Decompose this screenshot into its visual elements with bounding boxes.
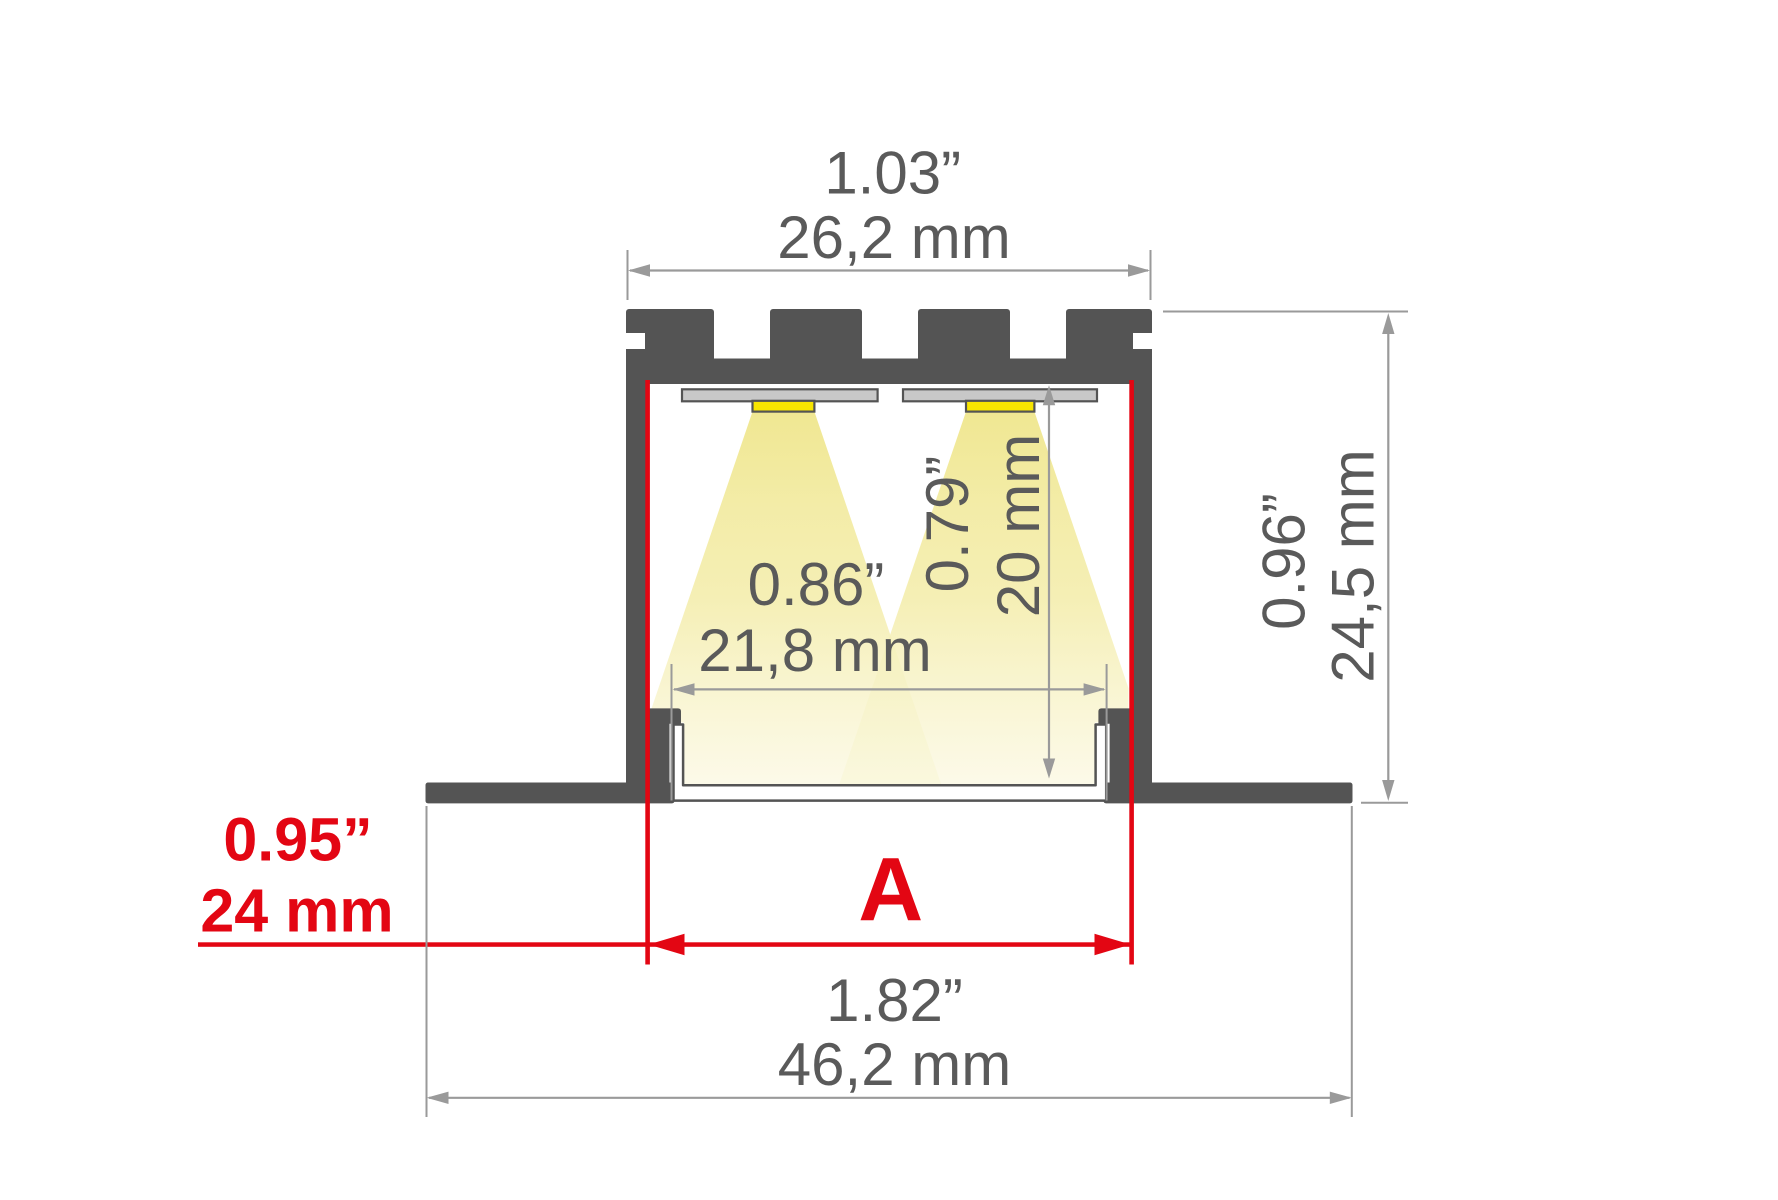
svg-text:24,5 mm: 24,5 mm xyxy=(1320,449,1387,682)
svg-text:0.96”: 0.96” xyxy=(1250,493,1317,630)
svg-text:0.95”: 0.95” xyxy=(223,805,372,873)
svg-text:24 mm: 24 mm xyxy=(200,877,393,945)
svg-text:46,2 mm: 46,2 mm xyxy=(778,1031,1011,1098)
svg-text:26,2 mm: 26,2 mm xyxy=(777,204,1010,271)
svg-text:1.82”: 1.82” xyxy=(826,967,963,1034)
svg-text:1.03”: 1.03” xyxy=(824,140,961,207)
svg-text:0.86”: 0.86” xyxy=(748,551,885,618)
svg-text:A: A xyxy=(858,841,923,941)
svg-text:21,8 mm: 21,8 mm xyxy=(698,617,931,684)
svg-text:0.79”: 0.79” xyxy=(914,456,981,593)
svg-text:20 mm: 20 mm xyxy=(985,434,1052,617)
